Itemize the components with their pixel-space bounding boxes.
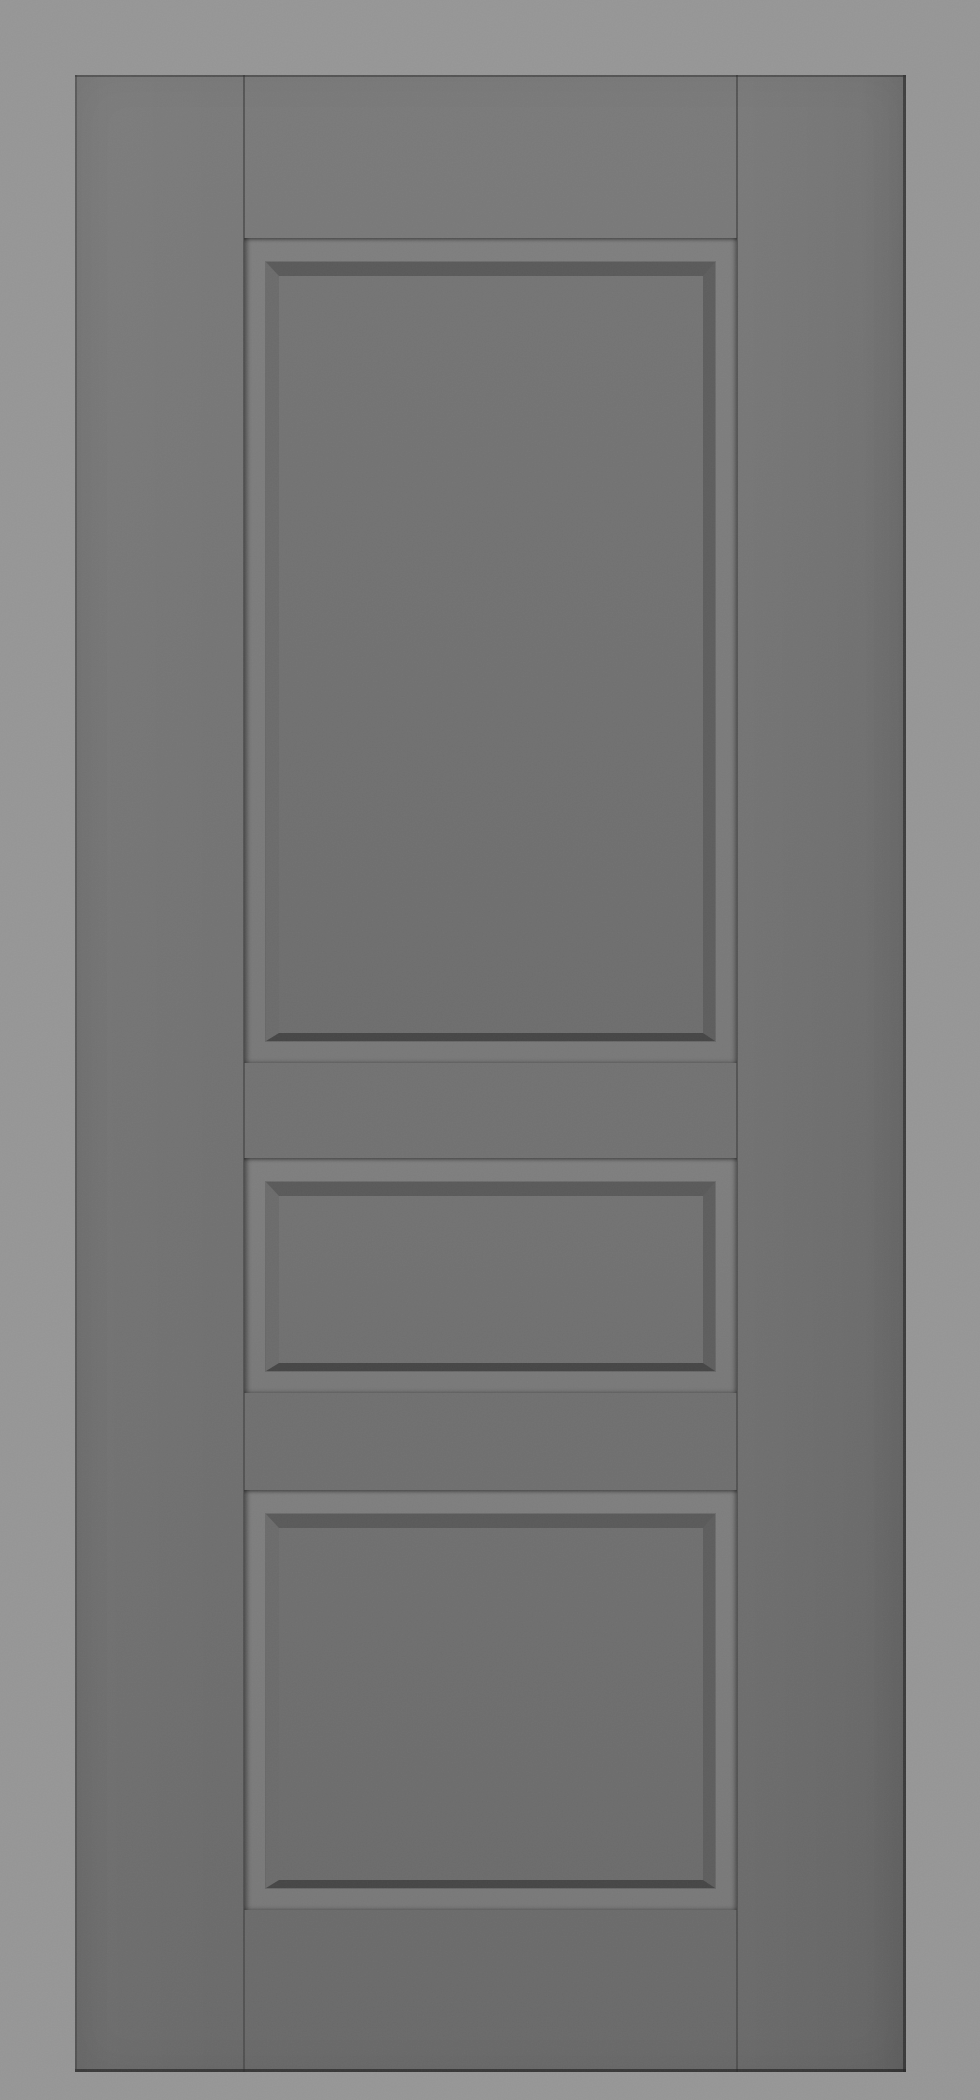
backdrop <box>0 0 980 2100</box>
raised-panel-top <box>266 262 715 1041</box>
rail-bottom <box>244 1910 737 2072</box>
raised-panel-middle <box>266 1182 715 1371</box>
rail-intermediate <box>244 1393 737 1490</box>
rail-top <box>244 75 737 238</box>
stile-right <box>737 75 906 2072</box>
rail-lock <box>244 1063 737 1158</box>
stile-left <box>75 75 244 2072</box>
raised-panel-bottom <box>266 1514 715 1888</box>
panel-opening-top <box>244 238 737 1063</box>
panel-opening-middle <box>244 1158 737 1393</box>
door-slab <box>75 75 906 2072</box>
panel-opening-bottom <box>244 1490 737 1910</box>
